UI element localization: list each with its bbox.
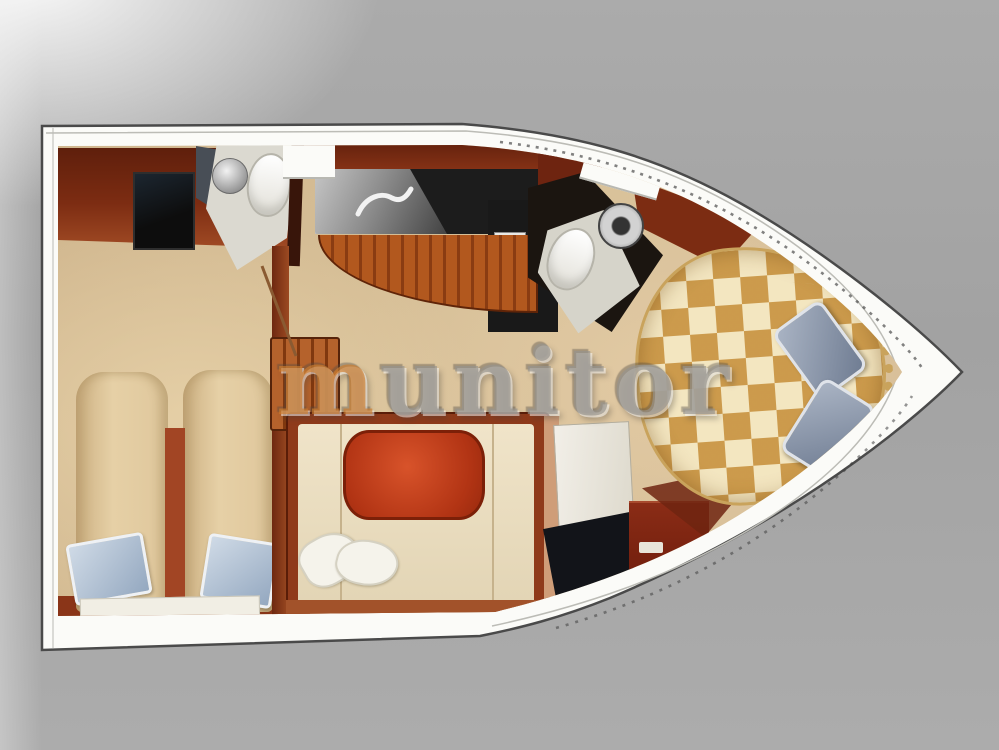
- watermark-rest-letters: unitor: [379, 327, 734, 436]
- galley-faucet-icon: [358, 189, 411, 214]
- watermark-first-letter: m: [276, 327, 379, 436]
- scene: munitor: [0, 0, 999, 750]
- watermark: munitor: [276, 332, 736, 436]
